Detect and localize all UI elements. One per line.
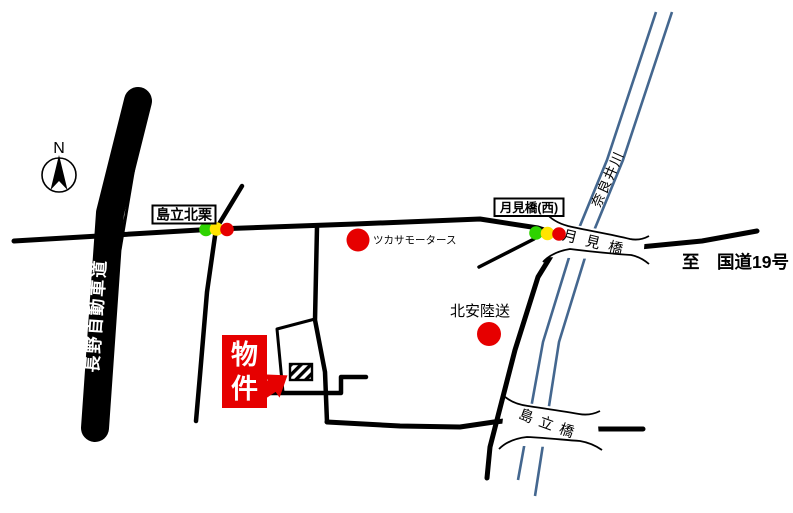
compass-n-label: N (53, 140, 65, 157)
compass-needle-icon (51, 155, 68, 190)
tsukimibashi-west-stub-road (479, 239, 534, 267)
poi-hokuan-rikuso: 北安陸送 (450, 303, 510, 346)
traffic-light-tsukimibashi-west-icon (529, 226, 566, 241)
poi-tsukasa-motors: ツカサモータース (347, 229, 457, 252)
label-tsukimibashi-west: 月見橋(西) (495, 199, 564, 217)
property-label-char: 物 (231, 340, 258, 370)
property-hatched-box (290, 364, 312, 380)
label-shimadachi-kitaguri: 島立北栗 (153, 206, 216, 224)
poi-label: 北安陸送 (450, 303, 510, 320)
compass: N (42, 140, 76, 192)
intersection-label: 月見橋(西) (499, 200, 558, 215)
route19-destination-label: 至 国道19号 (682, 252, 789, 272)
property-label-char: 件 (231, 374, 258, 404)
intersection-label: 島立北栗 (156, 207, 213, 223)
property-callout: 物 件 (222, 335, 295, 412)
poi-marker (347, 229, 370, 252)
poi-marker (477, 322, 501, 346)
poi-label: ツカサモータース (373, 235, 456, 247)
roads (14, 186, 757, 478)
map-canvas: 月見橋 島立橋 島立北栗 月見橋(西) ツカサモータース 北安陸送 (0, 0, 793, 513)
